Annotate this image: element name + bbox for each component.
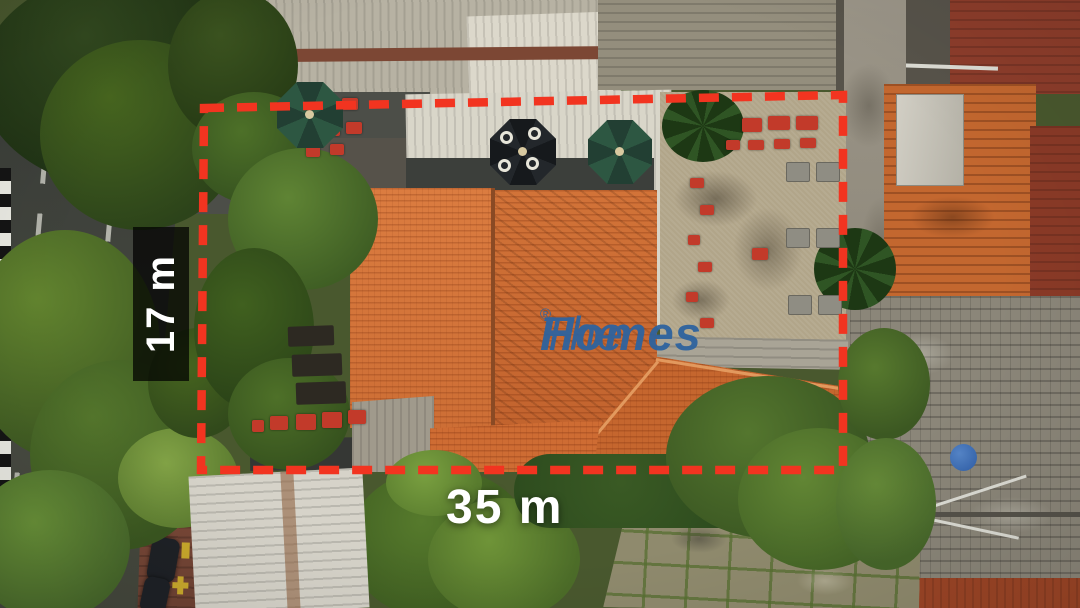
red-cafe-table [322, 412, 342, 428]
red-cafe-chair [800, 138, 816, 148]
red-cafe-table [752, 248, 768, 260]
tree-canopy [836, 438, 936, 570]
width-dimension-label: 35 m [446, 480, 563, 535]
concrete-table [788, 295, 812, 315]
height-dimension-label: 17 m [133, 227, 189, 381]
wooden-table [292, 353, 343, 377]
red-cafe-table [330, 144, 344, 155]
umbrella-light [500, 131, 513, 144]
watermark-suffix: Homes [540, 306, 702, 361]
red-cafe-chair [748, 140, 764, 150]
palm-tree [662, 90, 744, 162]
white-corrugated-roof [188, 468, 369, 608]
red-cafe-chair [698, 262, 712, 272]
red-cafe-table [348, 410, 366, 424]
dark-red-tile-roof [1030, 126, 1080, 316]
umbrella-pole [305, 110, 314, 119]
red-cafe-table [742, 118, 762, 132]
parked-motorcycle [139, 575, 172, 608]
red-cafe-table [342, 98, 358, 110]
red-cafe-chair [252, 420, 264, 432]
red-cafe-chair [688, 235, 700, 245]
height-dimension-text: 17 m [139, 254, 184, 353]
red-cafe-table [270, 416, 288, 430]
red-cafe-chair [774, 139, 790, 149]
red-cafe-chair [700, 205, 714, 215]
red-cafe-table [796, 116, 818, 130]
yellow-road-mark [181, 542, 190, 558]
umbrella-pole [615, 147, 624, 156]
roof-ridge [491, 188, 495, 430]
metal-panel [896, 94, 964, 186]
weathered-metal-roof [598, 0, 862, 90]
wooden-table [288, 325, 335, 347]
water-tank [950, 444, 977, 471]
umbrella-light [526, 157, 539, 170]
umbrella-light [498, 159, 511, 172]
concrete-table [816, 162, 840, 182]
umbrella-light [528, 127, 541, 140]
red-cafe-table [296, 414, 316, 430]
red-cafe-table [768, 116, 790, 130]
yellow-road-mark [177, 576, 184, 594]
red-cafe-chair [690, 178, 704, 188]
aerial-photo-canvas: 17 m 35 m TheHomes® [0, 0, 1080, 608]
concrete-table [786, 162, 810, 182]
concrete-table [818, 295, 842, 315]
umbrella-pole [518, 147, 527, 156]
dark-red-tile-roof [950, 0, 1080, 94]
red-cafe-chair [700, 318, 714, 328]
red-cafe-chair [726, 140, 740, 150]
wooden-table [296, 381, 347, 405]
rust-streak [280, 471, 300, 608]
red-cafe-table [346, 122, 362, 134]
red-cafe-chair [686, 292, 698, 302]
concrete-table [786, 228, 810, 248]
registered-trademark-symbol: ® [540, 306, 552, 323]
tree-canopy [838, 328, 930, 440]
concrete-table [816, 228, 840, 248]
